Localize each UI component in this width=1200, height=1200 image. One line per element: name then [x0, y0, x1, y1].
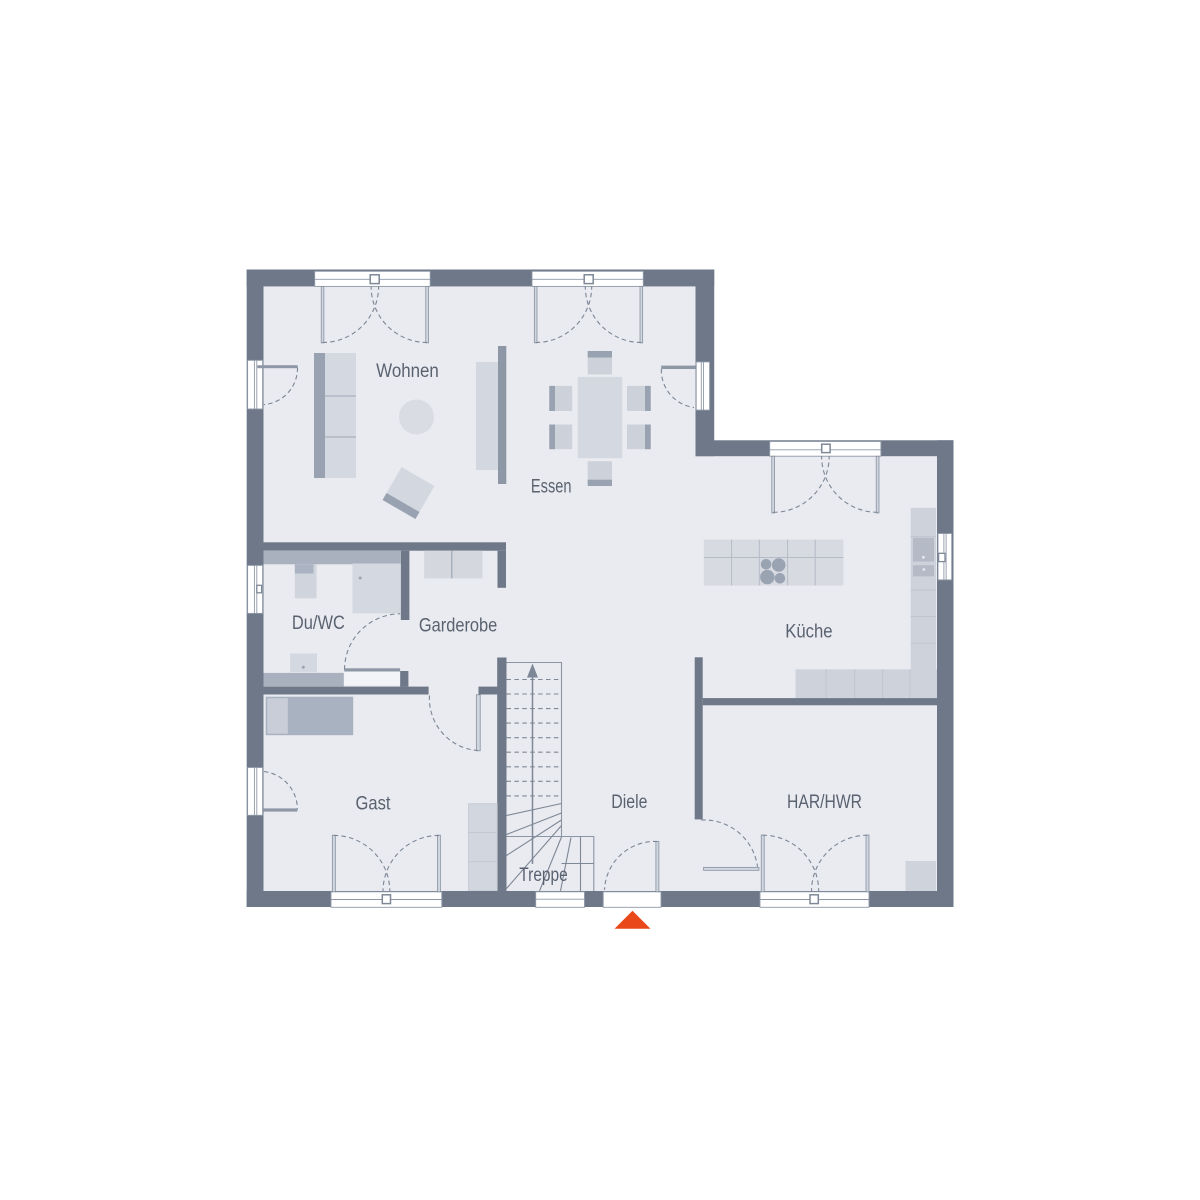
- svg-text:Küche: Küche: [785, 620, 832, 641]
- svg-text:Essen: Essen: [531, 475, 572, 498]
- svg-text:Wohnen: Wohnen: [376, 360, 439, 381]
- svg-text:Gast: Gast: [356, 792, 391, 814]
- svg-text:Treppe: Treppe: [519, 863, 567, 885]
- svg-text:Du/WC: Du/WC: [292, 612, 345, 634]
- svg-text:HAR/HWR: HAR/HWR: [787, 791, 862, 813]
- svg-text:Diele: Diele: [611, 790, 647, 812]
- svg-text:Garderobe: Garderobe: [419, 614, 497, 636]
